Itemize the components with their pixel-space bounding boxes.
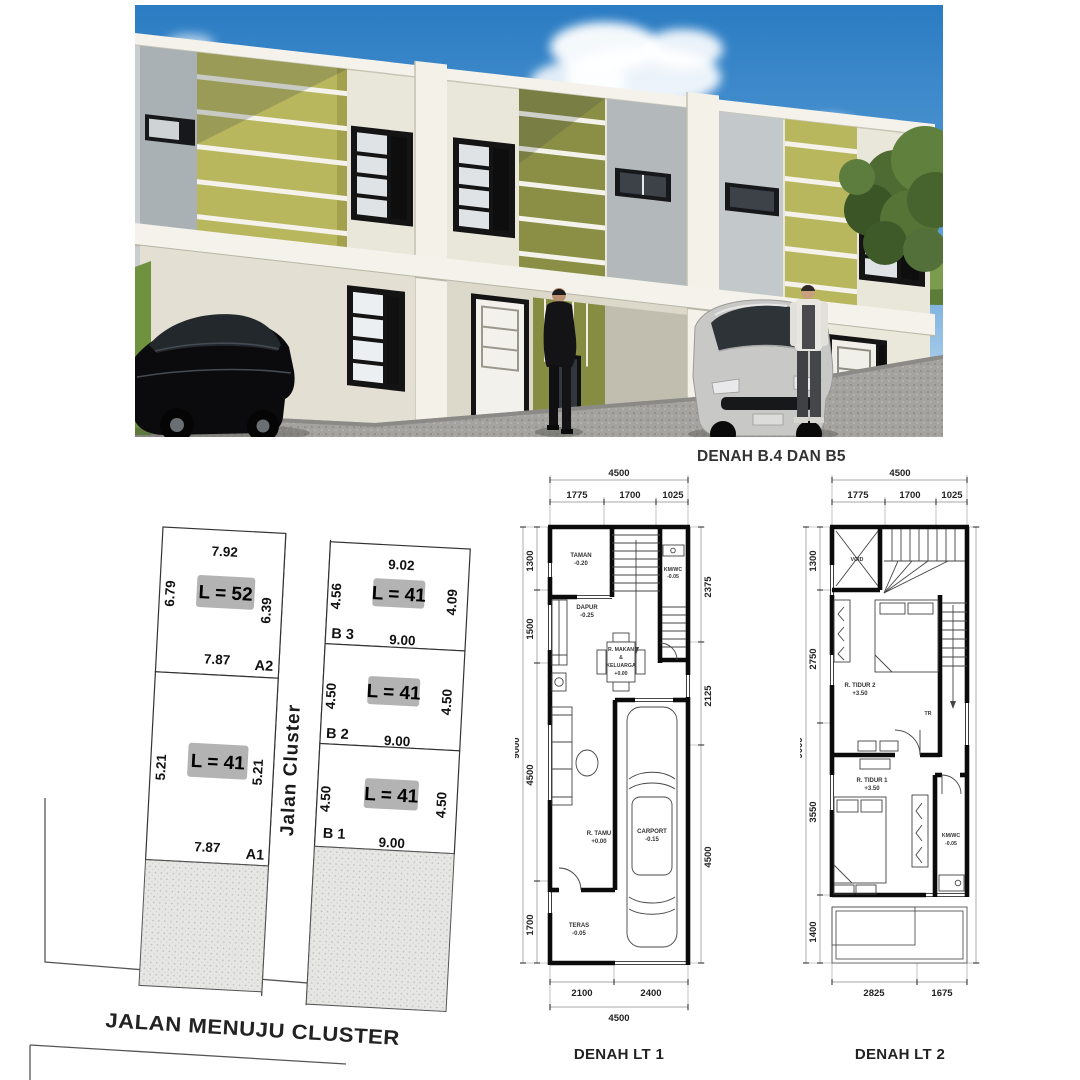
room-level: -0.15	[645, 837, 659, 843]
dim: 4500	[703, 846, 714, 867]
dim: 1025	[941, 490, 963, 501]
room-tidur2: R. TIDUR 2 +3.50	[834, 600, 938, 769]
room-level: -0.25	[580, 613, 594, 619]
street-label: Jalan Cluster	[277, 703, 305, 836]
area-label: L = 41	[190, 751, 246, 775]
room-level: -0.05	[667, 574, 679, 580]
room-label: VOID	[851, 557, 864, 563]
dim: 1775	[566, 490, 588, 501]
room-label: KM/WC	[664, 567, 682, 573]
room-label: KELUARGA	[606, 663, 636, 669]
dining-set: R. MAKAN & KELUARGA +0.00	[597, 633, 645, 691]
dim: 1025	[662, 490, 684, 501]
room-label: R. MAKAN	[608, 647, 634, 653]
room-tamu: R. TAMU +0.00	[552, 707, 611, 890]
dim: 2375	[703, 576, 714, 598]
dim-label: 9.00	[378, 835, 405, 851]
room-level: -0.05	[572, 931, 586, 937]
room-level: +0.00	[614, 671, 627, 677]
floor-plan-lt2: 4500 1775 1700 1025 9000 1300 2750 3550 …	[800, 445, 1080, 1080]
room-kmwc: KM/WC -0.05	[939, 775, 964, 891]
dim: 2400	[640, 988, 661, 999]
lot-id: A1	[245, 847, 264, 864]
room-level: -0.20	[574, 561, 588, 567]
room-label: KM/WC	[942, 833, 960, 839]
dim: 4500	[525, 764, 536, 785]
dim: 1700	[899, 490, 920, 501]
room-label: TERAS	[569, 923, 589, 929]
dim-label: 7.92	[211, 544, 238, 560]
lots-group: Jalan Cluster 7.92 6.79 6.39 L = 52 7.87…	[138, 527, 470, 1012]
lot-a2: 7.92 6.79 6.39 L = 52 7.87 A2	[155, 527, 285, 678]
room-dapur: DAPUR -0.25	[552, 600, 598, 691]
dim: 1300	[525, 550, 536, 571]
road-label: JALAN MENUJU CLUSTER	[105, 1009, 401, 1050]
reserved-lot-b	[306, 846, 454, 1011]
reserved-lot-a	[139, 860, 268, 992]
dim-label: 4.56	[328, 582, 344, 610]
dim: 2750	[808, 648, 819, 669]
dim: 1400	[808, 921, 819, 942]
lot-id: B 3	[331, 626, 354, 643]
flyer-page: JALAN MENUJU CLUSTER Jalan Cluster 7.92 …	[0, 0, 1080, 1080]
pilaster	[415, 61, 447, 437]
floor-plan-lt1: 4500 1775 1700 1025 9000 1300 1500 4500 …	[515, 445, 805, 1080]
dim: 2125	[703, 685, 714, 707]
window	[347, 285, 405, 392]
dim-left-total: 9000	[800, 737, 805, 758]
dim: 1500	[525, 618, 536, 639]
dim-label: 4.50	[317, 785, 333, 812]
room-label: R. TIDUR 1	[856, 778, 888, 784]
dim-label: 6.39	[258, 597, 274, 624]
lot-a1: 5.21 5.21 L = 41 7.87 A1	[146, 672, 279, 866]
room-level: +3.50	[864, 786, 880, 792]
hero-render-svg	[135, 5, 943, 437]
room-label: TAMAN	[570, 553, 591, 559]
dim-label: 4.09	[444, 589, 460, 616]
hero-render	[135, 5, 943, 437]
room-label: CARPORT	[637, 829, 667, 835]
window	[351, 126, 413, 227]
dim: 2100	[571, 988, 592, 999]
dim: 1700	[619, 490, 640, 501]
plan-title-lt2: DENAH LT 2	[855, 1046, 945, 1063]
dim: 1675	[931, 988, 953, 999]
lot-b3: 9.02 4.56 4.09 L = 41 B 3 9.00	[325, 542, 470, 651]
dim-label: 9.00	[389, 632, 416, 648]
lot-id: A2	[254, 658, 273, 675]
dim: 1700	[525, 914, 536, 935]
dim-label: 4.50	[439, 689, 455, 716]
dim: 1300	[808, 550, 819, 571]
site-plan-svg: JALAN MENUJU CLUSTER Jalan Cluster 7.92 …	[28, 505, 513, 1080]
dim-top-total: 4500	[608, 468, 629, 479]
area-label: L = 41	[371, 583, 427, 607]
window	[453, 137, 515, 238]
dim-left-total: 9000	[515, 737, 522, 758]
void-area: VOID	[836, 531, 878, 586]
dim-label: 6.79	[162, 580, 178, 607]
lot-b1: 4.50 4.50 L = 41 B 1 9.00	[314, 744, 459, 854]
area-label: L = 52	[198, 582, 253, 606]
dim: 1775	[847, 490, 869, 501]
room-label: DAPUR	[576, 605, 598, 611]
room-taman: TAMAN -0.20	[570, 553, 591, 567]
lot-id: B 2	[326, 726, 349, 743]
room-teras: TERAS -0.05	[569, 923, 589, 937]
carport: CARPORT -0.15	[627, 707, 677, 947]
dim-label: 7.87	[204, 651, 231, 667]
floor-plan-lt2-svg: 4500 1775 1700 1025 9000 1300 2750 3550 …	[800, 445, 1080, 1080]
room-level: -0.05	[945, 841, 957, 847]
dim-top-total: 4500	[889, 468, 910, 479]
room-level: +0.00	[591, 839, 607, 845]
lot-id: B 1	[322, 826, 345, 843]
dim-label: 4.50	[323, 683, 339, 710]
stair-note: TR	[925, 711, 932, 717]
dim-label: 5.21	[250, 758, 266, 786]
area-label: L = 41	[364, 784, 420, 808]
dim: 2825	[863, 988, 885, 999]
room-label: R. TAMU	[587, 831, 612, 837]
room-level: +3.50	[852, 691, 868, 697]
room-kmwc: KM/WC -0.05	[660, 545, 684, 660]
room-label: &	[619, 655, 623, 661]
room-tidur1: R. TIDUR 1 +3.50	[834, 778, 928, 894]
dim: 3550	[808, 801, 819, 822]
plan-title-lt1: DENAH LT 1	[574, 1046, 664, 1063]
dim-label: 5.21	[153, 753, 169, 781]
floor-plan-lt1-svg: 4500 1775 1700 1025 9000 1300 1500 4500 …	[515, 445, 805, 1080]
lot-b2: 4.50 4.50 L = 41 B 2 9.00	[320, 644, 465, 752]
dim-label: 9.02	[388, 557, 415, 573]
lower-roof-outline	[832, 907, 967, 963]
site-plan: JALAN MENUJU CLUSTER Jalan Cluster 7.92 …	[28, 505, 513, 1080]
dim-bottom-total: 4500	[608, 1013, 629, 1024]
dim-label: 7.87	[194, 839, 221, 855]
area-label: L = 41	[366, 681, 422, 705]
room-label: R. TIDUR 2	[844, 683, 876, 689]
dimension-lines	[803, 477, 979, 985]
dim-label: 4.50	[433, 791, 449, 818]
